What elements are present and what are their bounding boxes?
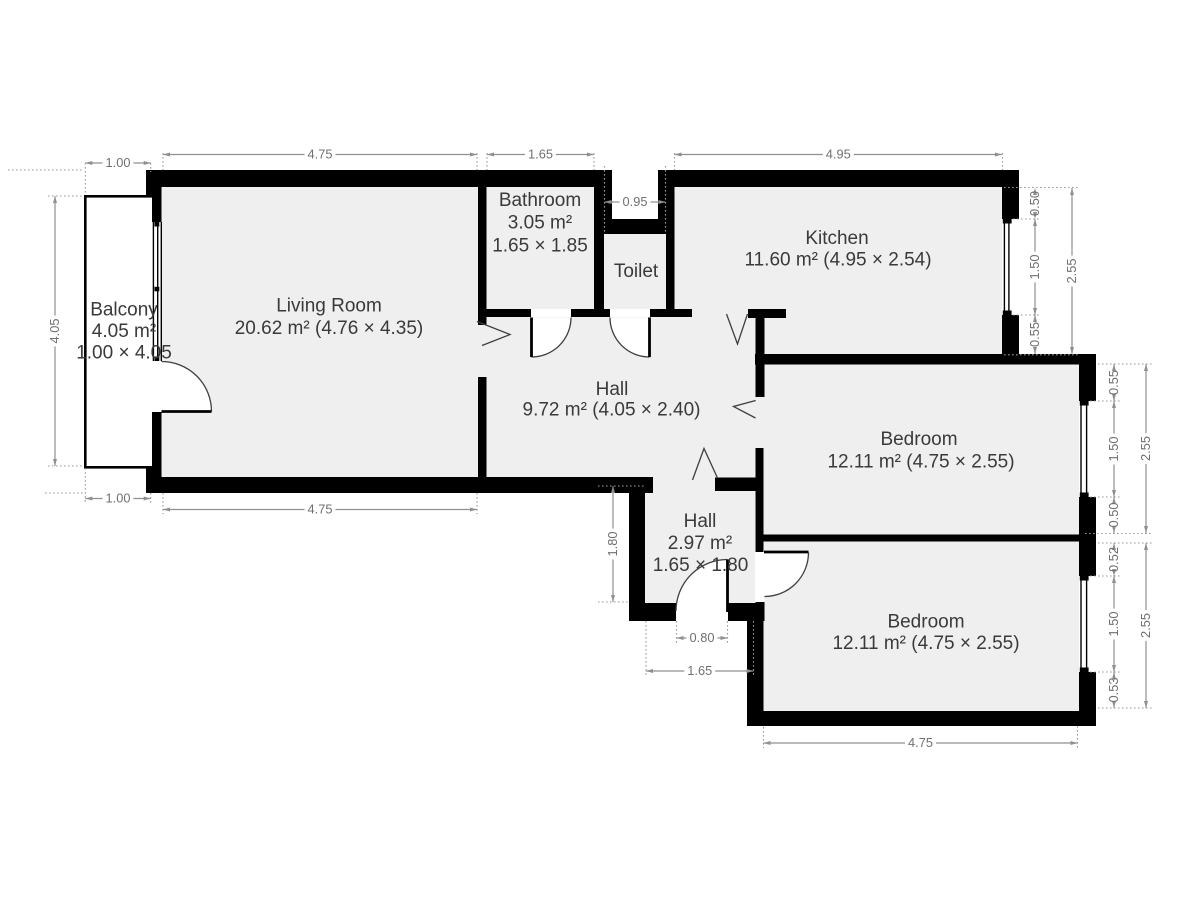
svg-text:4.75: 4.75: [308, 502, 333, 517]
svg-text:4.75: 4.75: [908, 735, 933, 750]
svg-text:20.62 m² (4.76 × 4.35): 20.62 m² (4.76 × 4.35): [235, 318, 424, 339]
svg-text:Bedroom: Bedroom: [880, 429, 957, 450]
svg-text:12.11 m² (4.75 × 2.55): 12.11 m² (4.75 × 2.55): [827, 452, 1014, 473]
svg-text:1.00: 1.00: [106, 155, 131, 170]
svg-text:1.00: 1.00: [106, 491, 131, 506]
svg-text:Bathroom: Bathroom: [499, 190, 581, 211]
svg-text:Bedroom: Bedroom: [887, 612, 964, 633]
svg-text:Balcony: Balcony: [90, 300, 158, 321]
svg-text:4.75: 4.75: [308, 147, 333, 162]
svg-text:1.65: 1.65: [687, 663, 712, 678]
svg-text:9.72 m² (4.05 × 2.40): 9.72 m² (4.05 × 2.40): [523, 400, 701, 421]
svg-text:0.50: 0.50: [1027, 191, 1042, 216]
svg-text:Kitchen: Kitchen: [805, 228, 868, 249]
svg-text:2.55: 2.55: [1064, 259, 1079, 284]
svg-text:2.55: 2.55: [1138, 613, 1153, 638]
svg-text:12.11 m² (4.75 × 2.55): 12.11 m² (4.75 × 2.55): [832, 633, 1019, 654]
svg-text:1.50: 1.50: [1027, 255, 1042, 280]
svg-text:0.52: 0.52: [1106, 547, 1121, 572]
svg-text:1.50: 1.50: [1106, 612, 1121, 637]
svg-text:2.55: 2.55: [1138, 436, 1153, 461]
svg-text:4.05: 4.05: [47, 319, 62, 344]
svg-text:0.50: 0.50: [1106, 503, 1121, 528]
svg-text:1.65 × 1.80: 1.65 × 1.80: [653, 555, 749, 576]
svg-text:Hall: Hall: [596, 379, 629, 400]
svg-text:1.65 × 1.85: 1.65 × 1.85: [492, 236, 588, 257]
svg-text:0.55: 0.55: [1106, 370, 1121, 395]
svg-text:1.65: 1.65: [528, 147, 553, 162]
svg-text:Living Room: Living Room: [276, 296, 382, 317]
svg-text:1.00 × 4.05: 1.00 × 4.05: [76, 343, 172, 364]
svg-text:11.60 m² (4.95 × 2.54): 11.60 m² (4.95 × 2.54): [744, 250, 931, 271]
svg-text:0.53: 0.53: [1106, 678, 1121, 703]
svg-text:Hall: Hall: [684, 511, 717, 532]
svg-text:0.95: 0.95: [623, 194, 648, 209]
svg-text:Toilet: Toilet: [614, 261, 659, 282]
svg-text:0.55: 0.55: [1027, 322, 1042, 347]
svg-text:4.05 m²: 4.05 m²: [92, 321, 156, 342]
svg-text:1.80: 1.80: [605, 532, 620, 557]
svg-text:4.95: 4.95: [826, 147, 851, 162]
svg-text:3.05 m²: 3.05 m²: [508, 213, 572, 234]
svg-text:0.80: 0.80: [690, 630, 715, 645]
svg-text:2.97 m²: 2.97 m²: [668, 533, 732, 554]
svg-text:1.50: 1.50: [1106, 437, 1121, 462]
